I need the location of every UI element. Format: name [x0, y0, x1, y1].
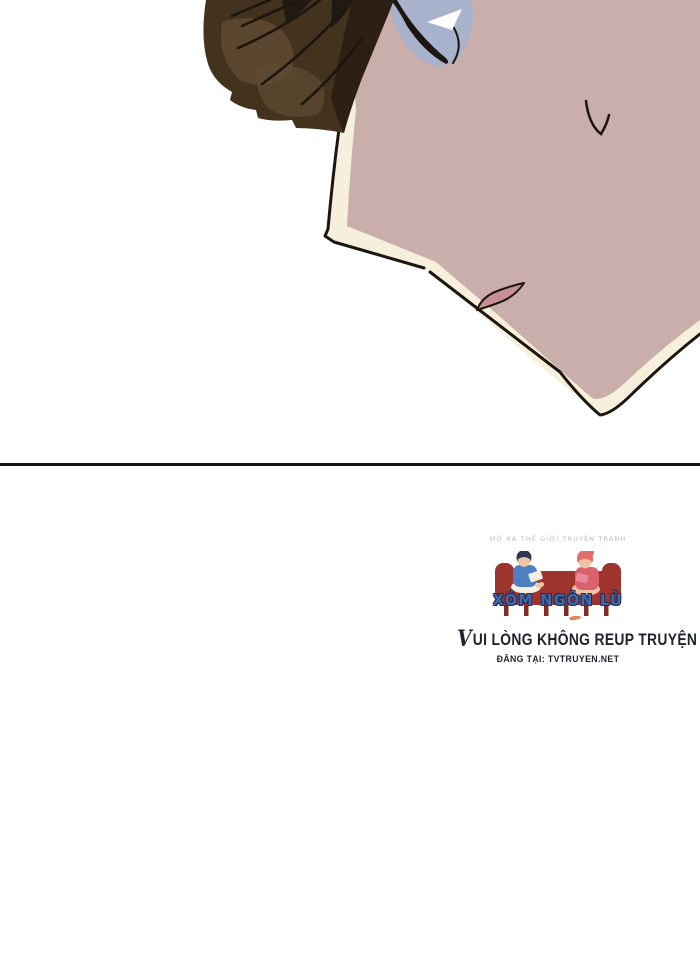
- watermark-tagline: MỞ RA THẾ GIỚI TRUYỆN TRANH: [438, 534, 678, 544]
- logo-title: XÓM NGÔN LÙ: [457, 593, 658, 608]
- girl-reading: [572, 551, 600, 596]
- panel-divider: [0, 463, 700, 466]
- webtoon-page: MỞ RA THẾ GIỚI TRUYỆN TRANH: [0, 0, 700, 960]
- manga-panel: [0, 0, 700, 464]
- bowed-head-character-illustration: [0, 0, 700, 464]
- reup-notice: VUI LÒNG KHÔNG REUP TRUYỆN: [457, 626, 659, 652]
- notice-initial: V: [457, 626, 472, 652]
- couple-reading-on-sofa-icon: [492, 551, 624, 623]
- dropped-snack-squiggle: [569, 616, 582, 620]
- publisher-logo: XÓM NGÔN LÙ: [492, 551, 624, 623]
- boy-reading: [511, 551, 545, 594]
- translator-watermark: MỞ RA THẾ GIỚI TRUYỆN TRANH: [438, 528, 678, 666]
- source-site: ĐĂNG TẠI: TVTRUYEN.NET: [448, 654, 669, 666]
- notice-rest: UI LÒNG KHÔNG REUP TRUYỆN: [473, 631, 698, 649]
